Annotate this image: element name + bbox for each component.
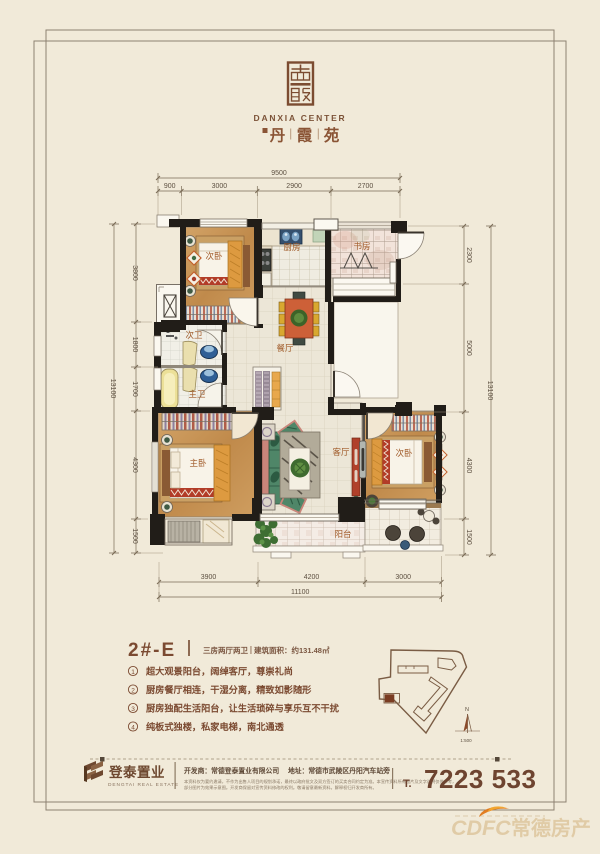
svg-text:DANXIA CENTER: DANXIA CENTER: [254, 113, 347, 123]
svg-text:登泰置业: 登泰置业: [108, 764, 165, 780]
svg-text:4200: 4200: [304, 574, 320, 581]
svg-text:次卧: 次卧: [395, 448, 413, 458]
svg-text:4300: 4300: [131, 457, 138, 473]
svg-text:T.: T.: [403, 778, 412, 790]
svg-text:1:500: 1:500: [460, 738, 472, 743]
svg-text:2300: 2300: [465, 247, 472, 263]
svg-text:厨房独配生活阳台，让生活琐碎与享乐互不干扰: 厨房独配生活阳台，让生活琐碎与享乐互不干扰: [146, 703, 340, 714]
svg-text:餐厅: 餐厅: [276, 343, 294, 353]
svg-text:苑: 苑: [324, 126, 340, 145]
svg-text:地址：常德市武陵区丹阳汽车站旁: 地址：常德市武陵区丹阳汽车站旁: [288, 766, 390, 775]
svg-text:次卧: 次卧: [205, 251, 223, 261]
svg-text:厨房: 厨房: [283, 242, 300, 252]
svg-text:1500: 1500: [465, 529, 472, 545]
svg-text:11100: 11100: [291, 589, 310, 596]
svg-text:阳台: 阳台: [334, 529, 351, 539]
svg-text:4: 4: [131, 725, 135, 732]
svg-text:客厅: 客厅: [332, 447, 350, 457]
svg-text:3800: 3800: [131, 265, 138, 281]
svg-text:常德房产: 常德房产: [511, 816, 591, 840]
svg-text:霞: 霞: [297, 127, 313, 145]
svg-text:建筑面积：约131.48㎡: 建筑面积：约131.48㎡: [253, 645, 330, 655]
svg-text:本资料仅为要约邀请，不作为出售人项目的规划承诺，最终以政府批: 本资料仅为要约邀请，不作为出售人项目的规划承诺，最终以政府批文及双方签订的买卖合…: [184, 778, 456, 785]
svg-text:书房: 书房: [353, 241, 370, 251]
svg-text:3: 3: [131, 706, 135, 713]
svg-text:13100: 13100: [109, 379, 116, 399]
svg-text:丹: 丹: [270, 127, 286, 145]
svg-text:1500: 1500: [131, 528, 138, 544]
svg-text:9500: 9500: [271, 170, 287, 177]
svg-text:900: 900: [164, 183, 176, 190]
svg-text:4300: 4300: [465, 458, 472, 474]
svg-text:3000: 3000: [395, 574, 411, 581]
svg-text:2900: 2900: [286, 183, 302, 190]
svg-text:7223 533: 7223 533: [424, 764, 536, 794]
svg-text:超大观景阳台，阔绰客厅，尊崇礼尚: 超大观景阳台，阔绰客厅，尊崇礼尚: [145, 666, 293, 677]
svg-text:N: N: [465, 707, 469, 713]
svg-text:CDFC: CDFC: [451, 816, 511, 840]
svg-text:1700: 1700: [131, 381, 138, 397]
svg-text:主卧: 主卧: [189, 458, 207, 468]
svg-text:3000: 3000: [212, 183, 228, 190]
svg-text:纯板式独楼，私家电梯，南北通透: 纯板式独楼，私家电梯，南北通透: [146, 721, 285, 732]
svg-text:1: 1: [131, 669, 135, 676]
svg-text:次卫: 次卫: [185, 330, 203, 340]
svg-text:5000: 5000: [465, 340, 472, 356]
svg-text:2: 2: [131, 688, 135, 695]
svg-text:2700: 2700: [358, 183, 374, 190]
svg-text:1800: 1800: [131, 337, 138, 353]
svg-text:部分图片为效果示意图。开发商保留对宣传资料修改的权利。敬请留: 部分图片为效果示意图。开发商保留对宣传资料修改的权利。敬请留意最新资料。解释权归…: [184, 784, 377, 791]
svg-text:13100: 13100: [486, 381, 493, 401]
svg-text:2#-E: 2#-E: [128, 640, 176, 661]
svg-text:厨房餐厅相连，干湿分离，精致如影随形: 厨房餐厅相连，干湿分离，精致如影随形: [146, 684, 312, 695]
svg-text:3900: 3900: [201, 574, 217, 581]
svg-text:主卫: 主卫: [188, 389, 206, 399]
svg-text:开发商：常德登泰置业有限公司: 开发商：常德登泰置业有限公司: [184, 766, 279, 775]
svg-text:DENGTAI REAL ESTATE: DENGTAI REAL ESTATE: [108, 782, 179, 788]
svg-text:三房两厅两卫: 三房两厅两卫: [203, 645, 248, 655]
